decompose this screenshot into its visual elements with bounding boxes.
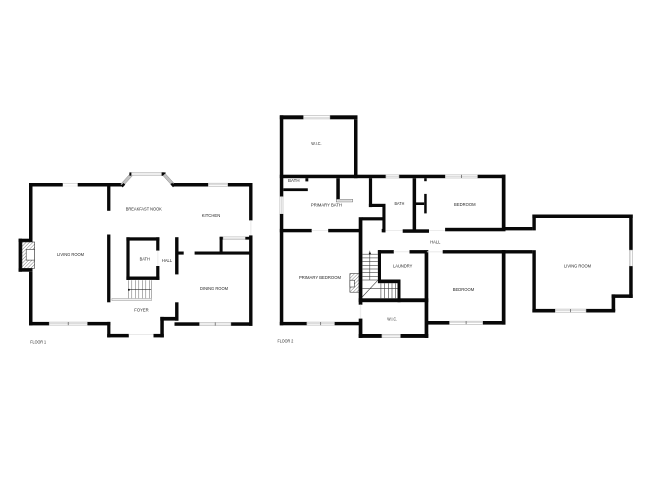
svg-text:LIVING ROOM: LIVING ROOM [564,264,591,269]
svg-text:W.I.C.: W.I.C. [387,317,397,322]
svg-text:W.I.C.: W.I.C. [311,141,321,146]
svg-text:KITCHEN: KITCHEN [202,213,221,218]
svg-text:DINING ROOM: DINING ROOM [200,286,228,291]
svg-text:BATH: BATH [140,257,150,262]
svg-text:LAUNDRY: LAUNDRY [393,264,412,269]
svg-text:HALL: HALL [162,258,173,263]
svg-text:PRIMARY BEDROOM: PRIMARY BEDROOM [299,275,341,280]
svg-text:BEDROOM: BEDROOM [453,287,475,292]
svg-text:FOYER: FOYER [134,307,149,312]
svg-text:HALL: HALL [430,240,440,245]
svg-text:BATH: BATH [288,178,300,183]
svg-text:FLOOR 2: FLOOR 2 [278,339,294,344]
svg-text:BEDROOM: BEDROOM [454,202,476,207]
svg-text:PRIMARY BATH: PRIMARY BATH [311,202,342,207]
svg-text:FLOOR 1: FLOOR 1 [30,340,46,345]
svg-text:BATH: BATH [395,201,405,206]
svg-text:BREAKFAST NOOK: BREAKFAST NOOK [126,207,163,212]
svg-text:LIVING ROOM: LIVING ROOM [57,252,84,257]
